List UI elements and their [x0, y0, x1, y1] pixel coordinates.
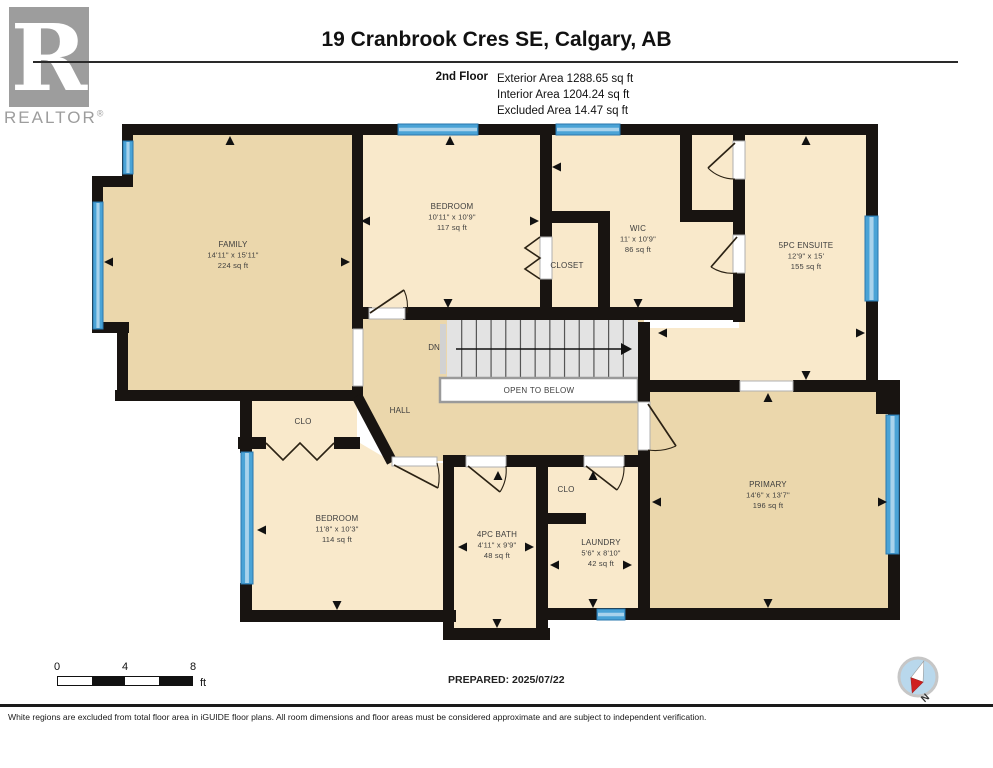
compass: N	[895, 655, 947, 707]
wall	[680, 124, 692, 222]
wall	[733, 179, 745, 235]
wall	[117, 322, 128, 401]
wall	[540, 279, 552, 315]
wall	[334, 437, 360, 449]
wall	[598, 211, 610, 315]
wall	[650, 380, 740, 392]
wall	[733, 124, 745, 141]
wall	[733, 273, 745, 322]
wall	[240, 583, 252, 622]
scale-bar-segments	[57, 676, 193, 686]
scale-tick-4: 4	[122, 661, 128, 673]
room-water-closet	[686, 130, 739, 216]
scale-tick-8: 8	[190, 661, 196, 673]
wall-opening	[584, 456, 624, 467]
floor-plan-page: R REALTOR® 19 Cranbrook Cres SE, Calgary…	[0, 0, 993, 768]
open-to-below-label: OPEN TO BELOW	[504, 386, 575, 395]
footer-divider	[0, 704, 993, 707]
wall	[403, 307, 745, 320]
wall	[548, 513, 586, 524]
wall	[638, 322, 650, 402]
wall-opening	[353, 329, 363, 386]
room-bedroom-2	[357, 130, 546, 314]
room-label-closet: CLOSET	[550, 261, 583, 270]
wall	[548, 455, 584, 467]
room-primary	[644, 386, 894, 614]
wall	[352, 124, 363, 329]
wall	[122, 124, 878, 135]
prepared-date: PREPARED: 2025/07/22	[448, 674, 565, 686]
wall-opening	[392, 457, 437, 466]
wall	[115, 390, 363, 401]
wall	[536, 608, 900, 620]
disclaimer-text: White regions are excluded from total fl…	[8, 712, 706, 722]
wall	[238, 437, 266, 449]
stair-jamb	[440, 324, 446, 374]
room-label-hall: HALL	[390, 406, 411, 415]
wall-opening	[466, 456, 506, 467]
wall	[624, 455, 646, 467]
wall	[240, 610, 456, 622]
wall-opening	[638, 402, 650, 450]
scale-tick-0: 0	[54, 661, 60, 673]
wall-opening	[740, 381, 793, 391]
scale-unit: ft	[200, 677, 206, 689]
wall-opening	[540, 237, 552, 279]
room-label-clo-hall: CLO	[294, 417, 311, 426]
scale-bar: 0 4 8 ft	[57, 661, 193, 693]
floor-plan-drawing: DNOPEN TO BELOWFAMILY14'11" x 15'11"224 …	[0, 0, 993, 768]
wall	[638, 450, 650, 620]
wall	[443, 628, 550, 640]
room-label-clo-laundry: CLO	[557, 485, 574, 494]
wall-opening	[733, 141, 745, 179]
stairs-dn-label: DN	[428, 343, 440, 352]
